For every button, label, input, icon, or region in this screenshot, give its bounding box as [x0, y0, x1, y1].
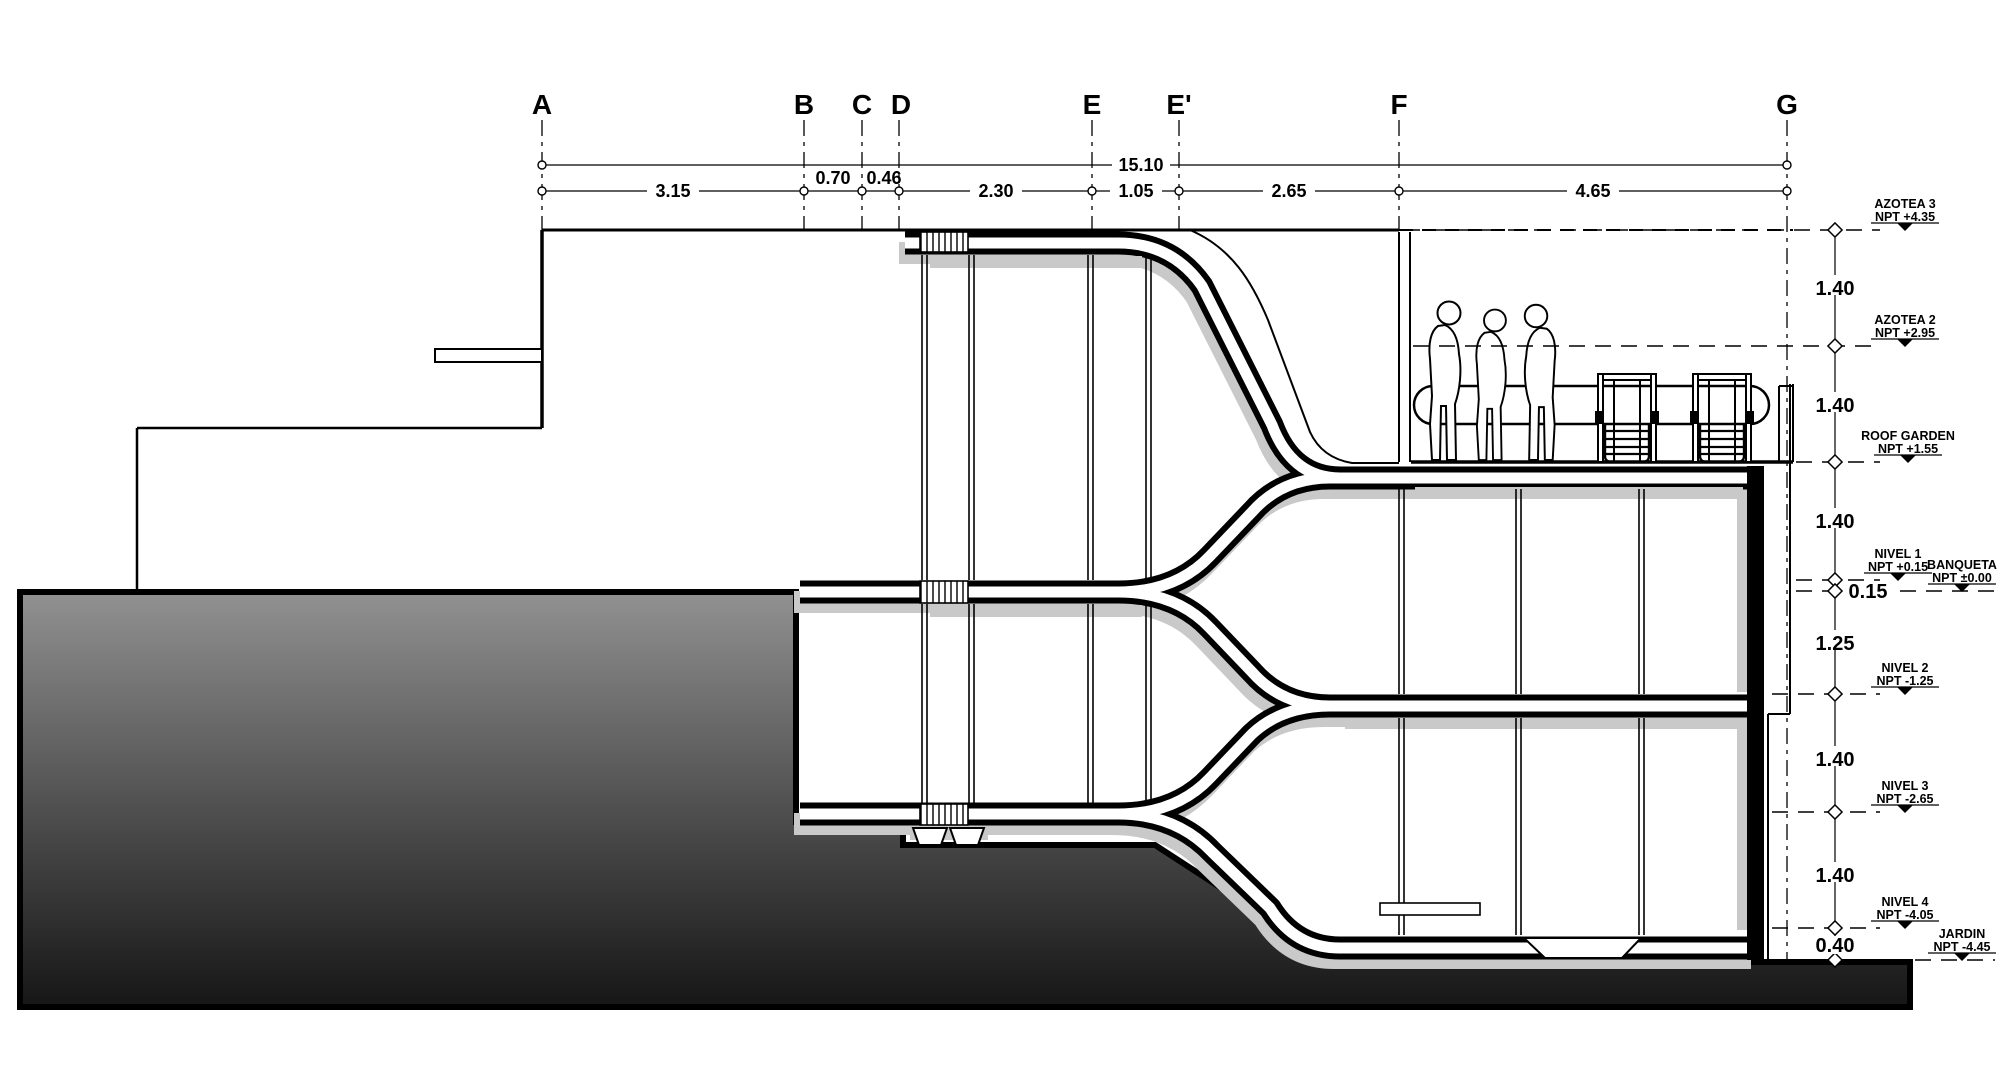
level-marker-nivel3: NIVEL 3 NPT -2.65	[1871, 779, 1939, 813]
spacing-n1-banqueta: 0.15	[1849, 581, 1888, 603]
spacing-n3-n4: 1.40	[1816, 865, 1855, 887]
svg-text:NPT -1.25: NPT -1.25	[1877, 674, 1934, 688]
person-2	[1476, 310, 1506, 461]
canopy-slab	[435, 349, 542, 362]
spacing-n2-n3: 1.40	[1816, 749, 1855, 771]
section-drawing: 15.10 3.15 0.70 0.46 2.30 1.05 2.65 4.65…	[0, 0, 2000, 1072]
right-wall-cut	[1747, 466, 1764, 960]
level-marker-banqueta: BANQUETA NPT ±0.00	[1927, 558, 1997, 592]
grid-label-a: A	[532, 89, 552, 120]
dim-d-e: 2.30	[978, 181, 1013, 201]
grid-label-c: C	[852, 89, 872, 120]
dim-a-b: 3.15	[655, 181, 690, 201]
overall-dimension: 15.10	[1118, 155, 1163, 175]
dim-b-c: 0.70	[815, 168, 850, 188]
louver-strip-n3	[920, 804, 968, 825]
spacing-rg-n1: 1.40	[1816, 511, 1855, 533]
svg-text:NIVEL 4: NIVEL 4	[1881, 895, 1928, 909]
footing-right	[1524, 938, 1641, 958]
svg-text:NPT +2.95: NPT +2.95	[1875, 326, 1935, 340]
svg-text:NIVEL 2: NIVEL 2	[1881, 661, 1928, 675]
dim-f-g: 4.65	[1575, 181, 1610, 201]
level-marker-nivel2: NIVEL 2 NPT -1.25	[1871, 661, 1939, 695]
spacing-banqueta-n2: 1.25	[1816, 633, 1855, 655]
svg-text:NPT -4.45: NPT -4.45	[1934, 940, 1991, 954]
svg-text:NPT ±0.00: NPT ±0.00	[1932, 571, 1992, 585]
left-glazing	[922, 255, 1151, 804]
guardrail-band	[1414, 386, 1769, 424]
svg-text:AZOTEA 3: AZOTEA 3	[1874, 197, 1935, 211]
svg-text:NPT +0.15: NPT +0.15	[1868, 560, 1928, 574]
level-marker-azotea3: AZOTEA 3 NPT +4.35	[1871, 197, 1939, 231]
grid-labels: A B C D E E' F G	[532, 89, 1798, 120]
branch-n3-n2	[800, 706, 1330, 814]
dimension-rows: 15.10 3.15 0.70 0.46 2.30 1.05 2.65 4.65	[538, 155, 1791, 201]
dim-e-ep: 1.05	[1118, 181, 1153, 201]
svg-text:NIVEL 1: NIVEL 1	[1874, 547, 1921, 561]
svg-text:BANQUETA: BANQUETA	[1927, 558, 1997, 572]
level-marker-azotea2: AZOTEA 2 NPT +2.95	[1871, 313, 1939, 347]
grid-label-ep: E'	[1166, 89, 1191, 120]
spacing-n4-jardin: 0.40	[1816, 935, 1855, 957]
roof-garden	[1399, 232, 1793, 462]
level-marker-jardin: JARDIN NPT -4.45	[1928, 927, 1996, 961]
grid-label-e: E	[1083, 89, 1102, 120]
section-drawing-canvas: 15.10 3.15 0.70 0.46 2.30 1.05 2.65 4.65…	[0, 0, 2000, 1072]
svg-text:ROOF GARDEN: ROOF GARDEN	[1861, 429, 1955, 443]
grid-label-d: D	[891, 89, 911, 120]
level-marker-roofgarden: ROOF GARDEN NPT +1.55	[1861, 429, 1955, 463]
svg-text:AZOTEA 2: AZOTEA 2	[1874, 313, 1935, 327]
grid-label-g: G	[1776, 89, 1798, 120]
louver-strip-n1	[920, 581, 968, 603]
person-1	[1429, 302, 1460, 461]
left-terrace	[137, 230, 542, 592]
svg-text:JARDIN: JARDIN	[1939, 927, 1986, 941]
footing-left-1	[913, 828, 947, 845]
level-marker-nivel4: NIVEL 4 NPT -4.05	[1871, 895, 1939, 929]
dim-c-d: 0.46	[866, 168, 901, 188]
dim-ep-f: 2.65	[1271, 181, 1306, 201]
grid-label-f: F	[1390, 89, 1407, 120]
svg-text:NPT -2.65: NPT -2.65	[1877, 792, 1934, 806]
spacing-az2-rg: 1.40	[1816, 395, 1855, 417]
svg-text:NPT +4.35: NPT +4.35	[1875, 210, 1935, 224]
level-marker-nivel1: NIVEL 1 NPT +0.15	[1864, 547, 1932, 581]
footing-left-2	[950, 828, 984, 845]
spacing-az3-az2: 1.40	[1816, 278, 1855, 300]
svg-text:NPT +1.55: NPT +1.55	[1878, 442, 1938, 456]
grid-label-b: B	[794, 89, 814, 120]
svg-text:NIVEL 3: NIVEL 3	[1881, 779, 1928, 793]
person-3	[1525, 305, 1555, 460]
svg-text:NPT -4.05: NPT -4.05	[1877, 908, 1934, 922]
level-markers: AZOTEA 3 NPT +4.35 AZOTEA 2 NPT +2.95 RO…	[1861, 197, 1997, 961]
sill-box	[1380, 903, 1480, 915]
louver-strip-roof	[920, 232, 968, 252]
